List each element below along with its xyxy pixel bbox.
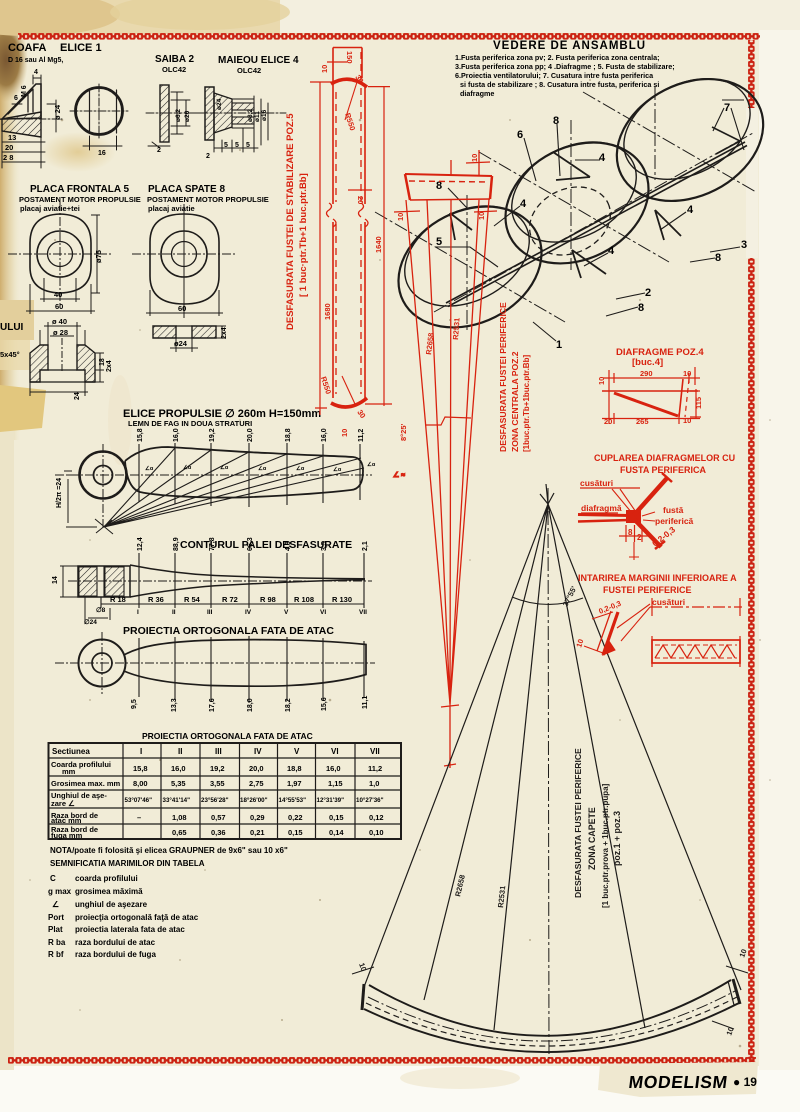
svg-text:0,10: 0,10 — [369, 828, 384, 837]
svg-text:2: 2 — [157, 147, 161, 154]
svg-text:8,00: 8,00 — [133, 779, 148, 788]
svg-text:si fusta de stabilizare ;: si fusta de stabilizare ; 8. Cusatura in… — [460, 80, 659, 89]
svg-text:77,8: 77,8 — [209, 537, 216, 551]
svg-text:15,8: 15,8 — [133, 764, 148, 773]
svg-text:8: 8 — [715, 252, 721, 264]
svg-text:14: 14 — [52, 576, 59, 584]
svg-text:2 8: 2 8 — [3, 153, 13, 162]
svg-text:18: 18 — [99, 358, 106, 366]
svg-text:∠α: ∠α — [296, 465, 305, 472]
svg-text:Sectiunea: Sectiunea — [52, 747, 90, 756]
svg-text:11,1: 11,1 — [362, 696, 369, 709]
svg-text:0,57: 0,57 — [211, 813, 226, 822]
svg-text:4: 4 — [608, 245, 615, 257]
svg-text:1,0: 1,0 — [369, 779, 379, 788]
svg-text:ø16: ø16 — [261, 109, 268, 121]
svg-text:5,35: 5,35 — [171, 779, 186, 788]
svg-text:atac mm: atac mm — [51, 816, 82, 825]
svg-text:cusături: cusături — [580, 478, 613, 488]
svg-text:4,8: 4,8 — [285, 541, 292, 551]
svg-text:R bf: R bf — [48, 950, 64, 959]
svg-text:8°25': 8°25' — [399, 423, 408, 441]
svg-text:1.Fusta periferica zona pv;: 1.Fusta periferica zona pv; 2. Fusta per… — [455, 53, 660, 62]
svg-text:15,8: 15,8 — [137, 428, 144, 442]
svg-text:ø 28: ø 28 — [53, 328, 68, 337]
svg-text:33°41'14": 33°41'14" — [163, 797, 191, 804]
svg-text:60: 60 — [55, 302, 63, 311]
svg-text:poz.1 + poz.3: poz.1 + poz.3 — [612, 811, 622, 866]
svg-text:15,6: 15,6 — [321, 697, 328, 711]
svg-text:10°27'36": 10°27'36" — [356, 797, 384, 804]
svg-text:10: 10 — [340, 429, 349, 437]
svg-text:placaj aviatie: placaj aviatie — [148, 204, 195, 213]
svg-text:8: 8 — [628, 528, 633, 537]
svg-text:11,2: 11,2 — [358, 429, 365, 442]
svg-text:R 98: R 98 — [260, 595, 276, 604]
svg-text:18,8: 18,8 — [287, 764, 302, 773]
svg-text:Plat: Plat — [48, 925, 63, 934]
svg-text:POSTAMENT MOTOR PROPULSIE: POSTAMENT MOTOR PROPULSIE — [19, 195, 141, 204]
svg-text:24: 24 — [74, 392, 81, 400]
svg-text:DESFASURATA FUSTEI PERIFER: DESFASURATA FUSTEI PERIFERICE — [573, 748, 583, 898]
svg-text:R ba: R ba — [48, 938, 66, 947]
svg-text:● 19: ● 19 — [733, 1075, 757, 1089]
svg-text:IV: IV — [254, 747, 262, 756]
svg-text:13: 13 — [8, 133, 16, 142]
svg-text:0,36: 0,36 — [211, 828, 226, 837]
svg-text:1,08: 1,08 — [172, 813, 187, 822]
svg-text:OLC42: OLC42 — [237, 66, 261, 75]
svg-text:COAFA: COAFA — [8, 42, 47, 54]
svg-text:ø8,2: ø8,2 — [247, 109, 254, 122]
svg-text:20,0: 20,0 — [247, 428, 254, 442]
svg-text:5: 5 — [235, 142, 239, 149]
svg-text:18,8: 18,8 — [285, 428, 292, 442]
svg-text:6: 6 — [517, 129, 523, 141]
svg-text:FUSTEI PERIFERICE: FUSTEI PERIFERICE — [603, 585, 692, 595]
svg-text:20: 20 — [5, 143, 13, 152]
svg-text:coarda profilului: coarda profilului — [75, 874, 138, 883]
svg-text:cusături: cusături — [652, 597, 685, 607]
svg-text:[1 buc.ptr.prova + 1buc.ptr.pu: [1 buc.ptr.prova + 1buc.ptr.pupa] — [601, 783, 610, 908]
svg-text:60: 60 — [178, 304, 186, 313]
svg-text:I: I — [140, 747, 142, 756]
svg-text:0,65: 0,65 — [172, 828, 187, 837]
svg-text:H/2π =24: H/2π =24 — [56, 478, 63, 508]
svg-text:C: C — [50, 874, 56, 883]
svg-text:zare ∠: zare ∠ — [51, 799, 75, 808]
svg-text:V: V — [284, 609, 289, 616]
svg-text:0,22: 0,22 — [288, 813, 303, 822]
svg-text:ELICE 1: ELICE 1 — [60, 42, 102, 54]
svg-text:CUPLAREA DIAFRAGMELOR CU: CUPLAREA DIAFRAGMELOR CU — [594, 453, 735, 463]
svg-text:[buc.4]: [buc.4] — [632, 357, 663, 368]
svg-text:ø75: ø75 — [94, 250, 103, 263]
svg-text:Port: Port — [48, 913, 64, 922]
svg-text:proiecţia ortogonală faţă d: proiecţia ortogonală faţă de atac — [75, 913, 199, 922]
svg-text:18°26'00": 18°26'00" — [240, 797, 268, 804]
svg-text:16,0: 16,0 — [321, 428, 328, 442]
svg-text:III: III — [207, 609, 213, 616]
svg-text:0,12: 0,12 — [369, 813, 384, 822]
svg-text:∠ ≈: ∠ ≈ — [393, 471, 405, 479]
svg-text:∠α: ∠α — [183, 464, 192, 471]
svg-text:proiectia laterala fata de: proiectia laterala fata de atac — [75, 925, 185, 934]
svg-text:raza bordului de fuga: raza bordului de fuga — [75, 950, 156, 959]
svg-text:0,15: 0,15 — [329, 813, 344, 822]
svg-text:18,2: 18,2 — [285, 698, 292, 712]
svg-text:fustă: fustă — [663, 505, 684, 515]
svg-text:g max: g max — [48, 887, 72, 896]
svg-text:10: 10 — [597, 377, 606, 385]
svg-text:9,5: 9,5 — [131, 699, 138, 709]
svg-text:unghiul de aşezare: unghiul de aşezare — [75, 900, 148, 909]
svg-text:R 18: R 18 — [110, 595, 126, 604]
svg-text:66,3: 66,3 — [247, 537, 254, 551]
svg-text:2: 2 — [637, 533, 642, 542]
svg-text:IV: IV — [245, 609, 252, 616]
svg-text:2x4: 2x4 — [106, 360, 113, 372]
svg-text:10: 10 — [683, 369, 691, 378]
svg-text:3,55: 3,55 — [210, 779, 225, 788]
svg-text:VI: VI — [320, 609, 326, 616]
svg-text:PLACA SPATE 8: PLACA SPATE 8 — [148, 184, 225, 195]
svg-text:18,0: 18,0 — [247, 698, 254, 712]
svg-text:4: 4 — [520, 198, 527, 210]
svg-text:19,2: 19,2 — [210, 764, 225, 773]
svg-text:5: 5 — [246, 142, 250, 149]
svg-text:14°55'53": 14°55'53" — [279, 797, 307, 804]
svg-text:ø 40: ø 40 — [52, 317, 67, 326]
svg-text:265: 265 — [636, 417, 649, 426]
svg-text:3.Fusta periferica zona pp;: 3.Fusta periferica zona pp; 4 .Diafragme… — [455, 62, 675, 71]
svg-text:SEMNIFICATIA MARIMILOR DIN: SEMNIFICATIA MARIMILOR DIN TABELA — [50, 859, 205, 868]
svg-text:raza bordului de atac: raza bordului de atac — [75, 938, 156, 947]
svg-text:17,6: 17,6 — [209, 698, 216, 712]
svg-text:0,29: 0,29 — [250, 813, 265, 822]
svg-text:16,0: 16,0 — [173, 428, 180, 442]
svg-text:4: 4 — [34, 69, 38, 76]
svg-text:∠α: ∠α — [333, 466, 342, 473]
svg-text:2,75: 2,75 — [249, 779, 264, 788]
svg-text:4: 4 — [599, 152, 606, 164]
svg-text:1,15: 1,15 — [328, 779, 343, 788]
svg-text:4: 4 — [687, 204, 694, 216]
svg-text:INTARIREA MARGINII INFERIOA: INTARIREA MARGINII INFERIOARE A — [578, 573, 737, 583]
svg-text:ø 24: ø 24 — [53, 104, 62, 120]
svg-text:5: 5 — [224, 142, 228, 149]
svg-text:D 16 sau Al Mg5,: D 16 sau Al Mg5, — [8, 57, 63, 64]
svg-text:10: 10 — [470, 154, 479, 162]
svg-text:19,2: 19,2 — [209, 428, 216, 442]
svg-text:6: 6 — [14, 95, 18, 102]
svg-text:DESFASURATA FUSTEI DE STABI: DESFASURATA FUSTEI DE STABILIZARE POZ.5 — [285, 113, 296, 330]
svg-text:20,0: 20,0 — [249, 764, 264, 773]
svg-text:1: 1 — [556, 339, 562, 351]
svg-text:53°07'46": 53°07'46" — [125, 797, 153, 804]
svg-text:115: 115 — [694, 397, 703, 409]
svg-text:8: 8 — [638, 302, 644, 314]
svg-text:20: 20 — [356, 196, 365, 204]
svg-text:12°31'39": 12°31'39" — [317, 797, 345, 804]
svg-text:88,9: 88,9 — [173, 537, 180, 551]
svg-text:VI: VI — [331, 747, 339, 756]
svg-text:ø26: ø26 — [184, 110, 191, 122]
svg-text:DESFASURATA FUSTEI PERIFERIC: DESFASURATA FUSTEI PERIFERICE — [498, 302, 508, 452]
svg-text:PLACA FRONTALA 5: PLACA FRONTALA 5 — [30, 184, 130, 195]
svg-text:ULUI: ULUI — [0, 322, 24, 333]
svg-text:diafragme: diafragme — [460, 89, 494, 98]
svg-text:12,4: 12,4 — [137, 537, 144, 551]
svg-text:LEMN DE FAG IN DOUA STR: LEMN DE FAG IN DOUA STRATURI — [128, 419, 252, 428]
svg-text:PROIECTIA ORTOGONALA FATA D: PROIECTIA ORTOGONALA FATA DE ATAC — [123, 625, 334, 637]
svg-text:VEDERE DE ANSAMBLU: VEDERE DE ANSAMBLU — [493, 40, 646, 52]
svg-text:R 36: R 36 — [148, 595, 164, 604]
svg-text:ZONA CAPETE: ZONA CAPETE — [587, 807, 597, 870]
svg-text:1680: 1680 — [323, 303, 332, 320]
svg-text:∠α: ∠α — [145, 465, 154, 472]
svg-text:7: 7 — [724, 102, 730, 114]
svg-text:2,1: 2,1 — [362, 541, 369, 551]
svg-text:M 6: M 6 — [21, 85, 28, 97]
svg-text:3,5: 3,5 — [321, 541, 328, 551]
svg-text:40: 40 — [54, 290, 62, 299]
svg-text:0,14: 0,14 — [329, 828, 344, 837]
svg-text:VII: VII — [370, 747, 380, 756]
svg-text:∅8: ∅8 — [96, 606, 106, 614]
svg-text:ZONA CENTRALA POZ.2: ZONA CENTRALA POZ.2 — [510, 351, 520, 452]
svg-text:150: 150 — [345, 51, 354, 64]
svg-text:16: 16 — [98, 150, 106, 157]
svg-text:ø24: ø24 — [174, 339, 188, 348]
svg-text:∠: ∠ — [52, 900, 59, 909]
svg-text:3: 3 — [741, 239, 747, 251]
svg-text:10: 10 — [683, 416, 691, 425]
svg-text:ø6,2: ø6,2 — [175, 109, 182, 122]
svg-text:R 130: R 130 — [332, 595, 352, 604]
svg-text:2: 2 — [206, 153, 210, 160]
svg-text:6.Proiectia ventilatorului;: 6.Proiectia ventilatorului; 7. Cusatura … — [455, 71, 654, 80]
svg-text:10: 10 — [396, 213, 405, 221]
svg-text:16,0: 16,0 — [171, 764, 186, 773]
svg-text:0,21: 0,21 — [250, 828, 265, 837]
svg-text:NOTA/poate fi folosită şi elic: NOTA/poate fi folosită şi elicea GRAUPNE… — [50, 846, 288, 855]
svg-text:∠α: ∠α — [220, 464, 229, 471]
svg-text:grosimea măximă: grosimea măximă — [75, 887, 143, 896]
svg-text:SAIBA 2: SAIBA 2 — [155, 54, 195, 65]
svg-text:III: III — [215, 747, 222, 756]
svg-text:[ 1 buc·ptr.Tb+1 buc.ptr.Bb]: [ 1 buc·ptr.Tb+1 buc.ptr.Bb] — [298, 173, 309, 297]
svg-text:20: 20 — [604, 417, 612, 426]
svg-text:∠α: ∠α — [367, 461, 376, 468]
svg-text:16,0: 16,0 — [326, 764, 341, 773]
svg-text:R 72: R 72 — [222, 595, 238, 604]
svg-text:POSTAMENT MOTOR PROPULSIE: POSTAMENT MOTOR PROPULSIE — [147, 195, 269, 204]
svg-text:0,15: 0,15 — [288, 828, 303, 837]
svg-text:23°56'28": 23°56'28" — [201, 797, 229, 804]
svg-text:R 54: R 54 — [184, 595, 201, 604]
svg-text:R2531: R2531 — [451, 317, 462, 340]
svg-text:MODELISM: MODELISM — [628, 1072, 729, 1092]
svg-text:II: II — [178, 747, 182, 756]
svg-text:diafragmă: diafragmă — [581, 503, 622, 513]
svg-text:Grosimea max. mm: Grosimea max. mm — [51, 779, 121, 788]
svg-text:V: V — [294, 747, 300, 756]
svg-text:R 108: R 108 — [294, 595, 314, 604]
svg-text:PROIECTIA ORTOGONALA FATA D: PROIECTIA ORTOGONALA FATA DE ATAC — [142, 731, 313, 741]
svg-text:II: II — [172, 609, 176, 616]
svg-text:MAIEOU ELICE 4: MAIEOU ELICE 4 — [218, 55, 299, 66]
svg-text:∅24: ∅24 — [84, 618, 97, 626]
svg-text:periferică: periferică — [655, 516, 694, 526]
svg-text:placaj aviatie+tei: placaj aviatie+tei — [20, 204, 80, 213]
svg-text:5x45°: 5x45° — [0, 350, 20, 359]
svg-text:13,3: 13,3 — [171, 698, 178, 712]
svg-text:ø24: ø24 — [216, 98, 223, 110]
svg-text:–: – — [137, 813, 141, 822]
svg-text:2x4: 2x4 — [221, 327, 228, 339]
svg-text:10: 10 — [477, 212, 486, 220]
svg-text:[1buc.ptr.Tb+1buc.ptr.Bb]: [1buc.ptr.Tb+1buc.ptr.Bb] — [522, 355, 531, 452]
svg-text:mm: mm — [62, 767, 76, 776]
svg-text:ø11: ø11 — [254, 111, 261, 122]
svg-text:Coarda profilului: Coarda profilului — [51, 760, 111, 769]
svg-text:∠α: ∠α — [258, 465, 267, 472]
svg-text:10: 10 — [320, 65, 329, 73]
svg-text:290: 290 — [640, 369, 653, 378]
svg-text:11,2: 11,2 — [368, 764, 382, 773]
svg-text:OLC42: OLC42 — [162, 65, 186, 74]
svg-text:1,97: 1,97 — [287, 779, 302, 788]
svg-text:VII: VII — [359, 609, 367, 616]
svg-text:1640: 1640 — [374, 236, 383, 253]
svg-text:I: I — [137, 609, 139, 616]
svg-text:2: 2 — [645, 287, 651, 299]
svg-text:5: 5 — [436, 236, 442, 248]
svg-text:8: 8 — [553, 115, 559, 127]
svg-text:fuga mm: fuga mm — [51, 831, 83, 840]
